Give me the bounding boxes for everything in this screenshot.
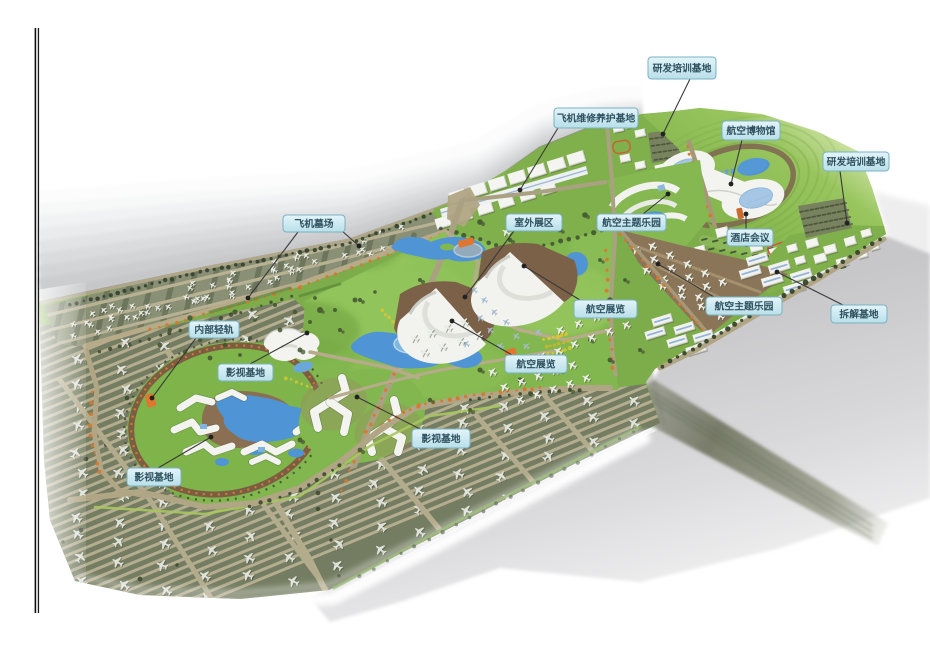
svg-text:内部轻轨: 内部轻轨 xyxy=(194,323,233,336)
svg-text:航空展览: 航空展览 xyxy=(516,358,555,371)
svg-text:研发培训基地: 研发培训基地 xyxy=(827,155,886,168)
svg-text:飞机维修养护基地: 飞机维修养护基地 xyxy=(557,112,636,125)
svg-text:拆解基地: 拆解基地 xyxy=(839,308,878,321)
svg-text:研发培训基地: 研发培训基地 xyxy=(653,62,712,75)
svg-text:航空博物馆: 航空博物馆 xyxy=(727,124,776,137)
svg-text:影视基地: 影视基地 xyxy=(226,366,265,379)
svg-text:航空主题乐园: 航空主题乐园 xyxy=(602,216,661,229)
svg-text:影视基地: 影视基地 xyxy=(134,471,173,484)
svg-text:酒店会议: 酒店会议 xyxy=(730,231,769,244)
svg-text:室外展区: 室外展区 xyxy=(514,216,553,229)
svg-text:航空展览: 航空展览 xyxy=(586,303,625,316)
svg-text:影视基地: 影视基地 xyxy=(421,432,460,445)
svg-text:飞机墓场: 飞机墓场 xyxy=(294,217,333,230)
svg-text:航空主题乐园: 航空主题乐园 xyxy=(715,300,774,313)
